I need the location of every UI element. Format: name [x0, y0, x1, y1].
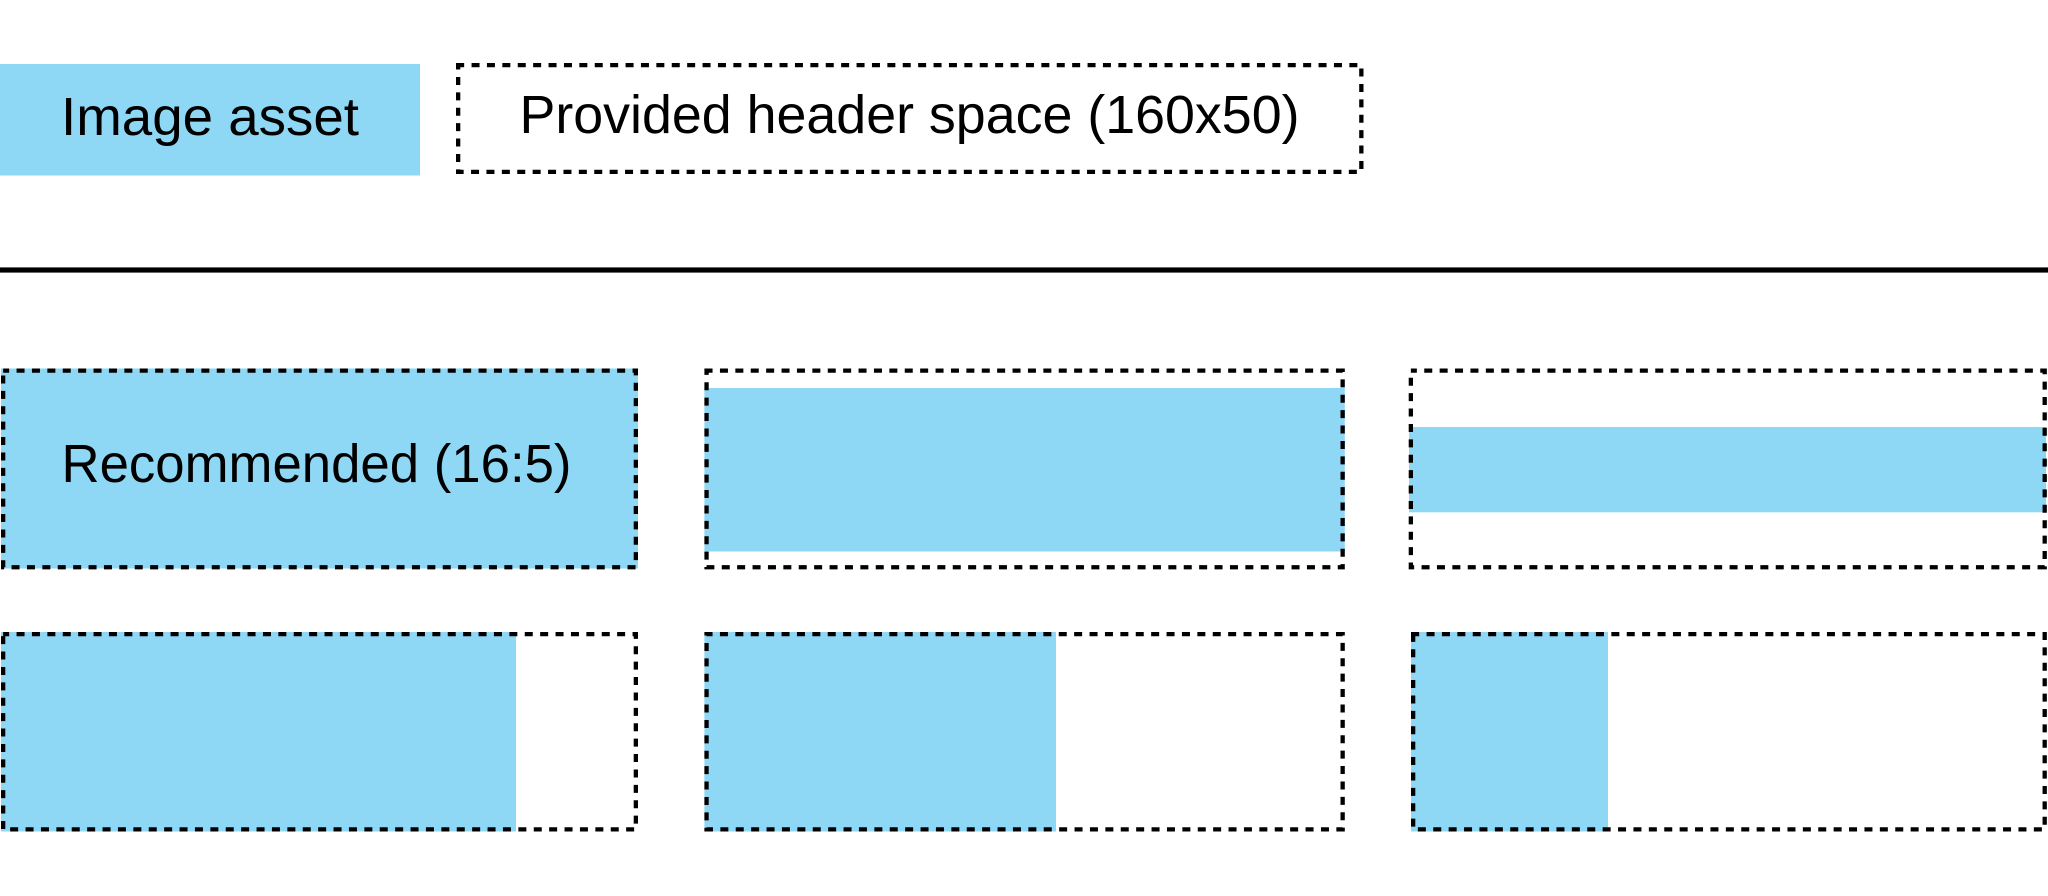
- svg-text:Recommended (16:5): Recommended (16:5): [62, 434, 572, 494]
- svg-text:Provided header space (160x50): Provided header space (160x50): [520, 85, 1300, 145]
- svg-text:Image asset: Image asset: [61, 87, 359, 147]
